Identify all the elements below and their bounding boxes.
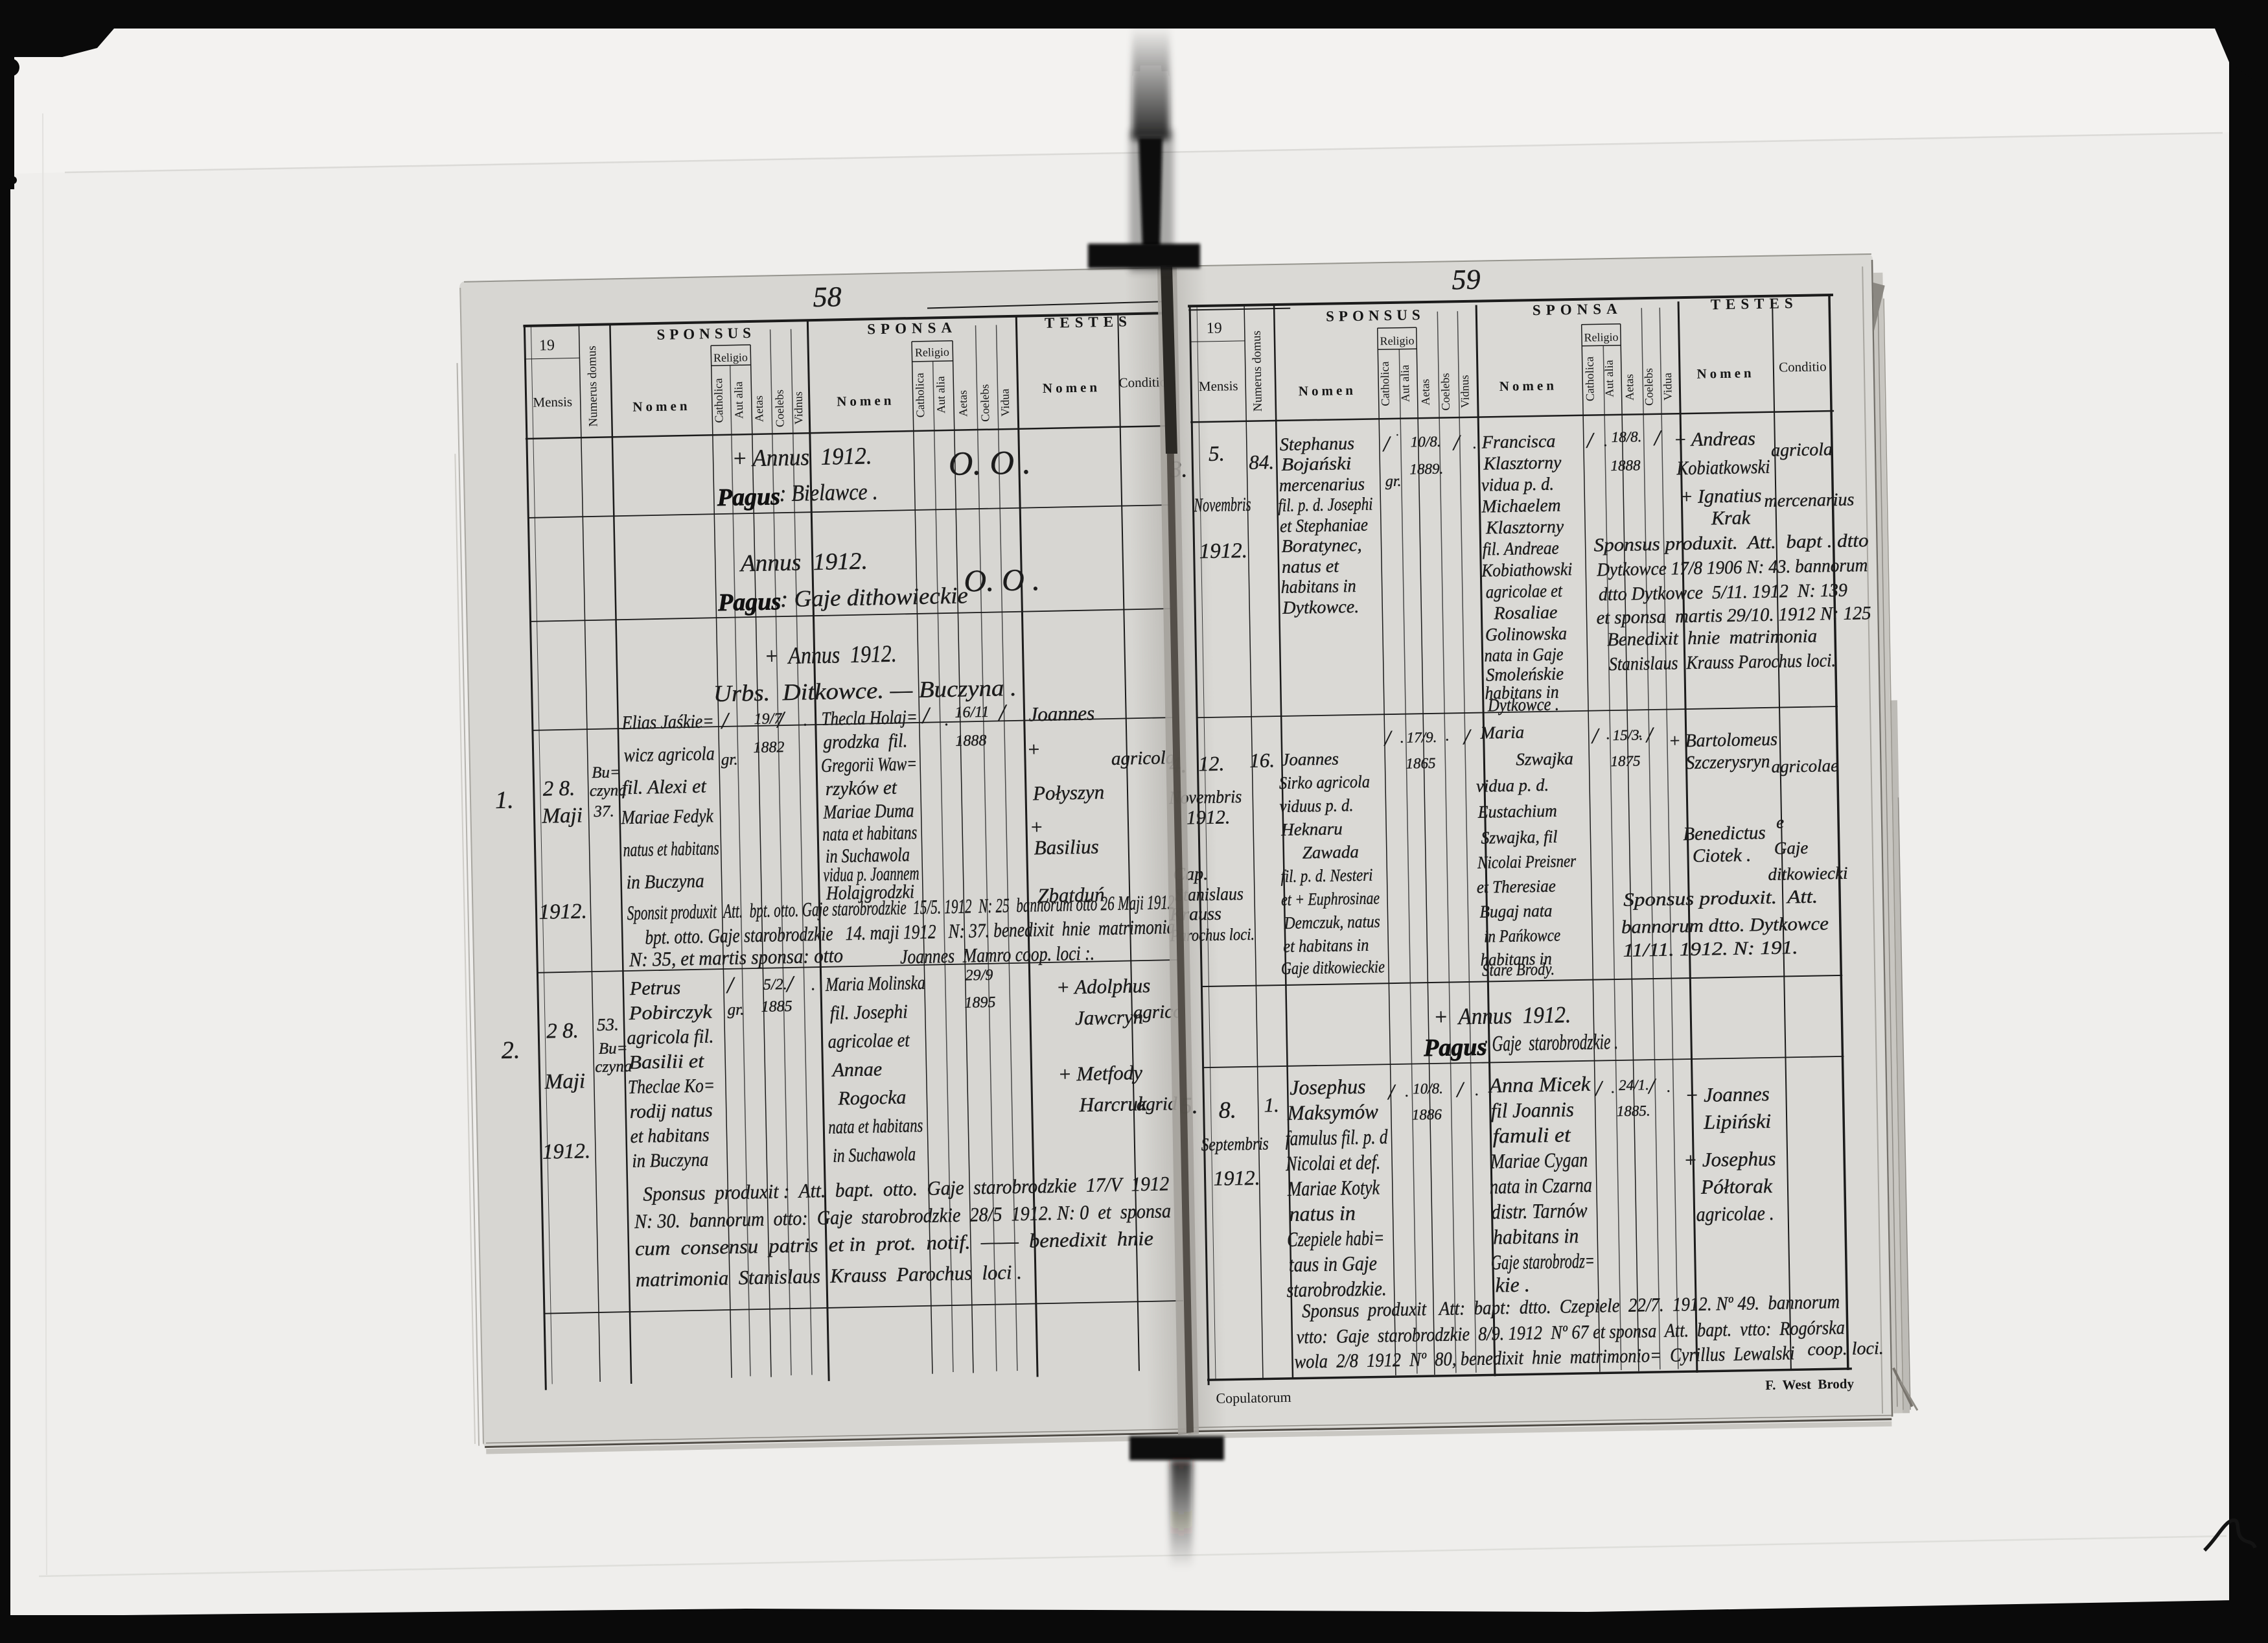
- svg-text:1.: 1.: [1264, 1093, 1279, 1116]
- svg-text:Aut alia: Aut alia: [732, 381, 745, 419]
- svg-text:5/2.: 5/2.: [763, 976, 787, 994]
- svg-text:gr.: gr.: [727, 1001, 744, 1019]
- svg-text:1885: 1885: [761, 998, 793, 1016]
- svg-text:SPONSA: SPONSA: [1533, 301, 1623, 318]
- svg-text:Francisca: Francisca: [1481, 432, 1556, 453]
- svg-text:Mariae Kotyk: Mariae Kotyk: [1287, 1175, 1380, 1200]
- svg-text:agricola: agricola: [1771, 439, 1833, 461]
- svg-text:Coelebs: Coelebs: [1439, 373, 1452, 410]
- svg-text:Szwajka, fil: Szwajka, fil: [1481, 827, 1558, 848]
- svg-text:habitans in: habitans in: [1493, 1224, 1579, 1248]
- svg-text:.: .: [1611, 1080, 1615, 1097]
- svg-text:Bu=: Bu=: [592, 763, 621, 782]
- svg-text:1885.: 1885.: [1617, 1102, 1650, 1119]
- svg-text:Religio: Religio: [1380, 334, 1414, 347]
- svg-text:.: .: [803, 710, 807, 729]
- svg-text:Catholica: Catholica: [913, 373, 927, 417]
- svg-text:TESTES: TESTES: [1710, 295, 1798, 312]
- svg-text:Szczerysryn: Szczerysryn: [1685, 751, 1770, 773]
- svg-text:24/1.: 24/1.: [1619, 1077, 1649, 1093]
- svg-text:.: .: [944, 710, 949, 729]
- svg-text:fil. Josephi: fil. Josephi: [829, 1001, 908, 1023]
- svg-text:Basilius: Basilius: [1034, 835, 1099, 859]
- svg-text:Maksymów: Maksymów: [1287, 1099, 1379, 1124]
- svg-text:1.: 1.: [495, 786, 514, 814]
- svg-text:Religio: Religio: [915, 345, 949, 359]
- svg-text:Coelebs: Coelebs: [772, 390, 786, 427]
- svg-text:Demczuk, natus: Demczuk, natus: [1284, 911, 1380, 933]
- svg-text:Septembris: Septembris: [1201, 1134, 1269, 1155]
- svg-text:Vidnus: Vidnus: [1458, 375, 1472, 408]
- svg-text:e: e: [1776, 812, 1785, 832]
- svg-text:Bojański: Bojański: [1281, 454, 1352, 475]
- svg-text:10/8.: 10/8.: [1413, 1080, 1443, 1097]
- svg-text:+: +: [1026, 738, 1041, 760]
- svg-text:Benedixit hnie matrimonia: Benedixit hnie matrimonia: [1607, 626, 1818, 651]
- svg-text:Aetas: Aetas: [956, 390, 970, 417]
- svg-text:agricolae et: agricolae et: [1486, 581, 1564, 602]
- svg-text:Nicolai Preisner: Nicolai Preisner: [1477, 851, 1577, 872]
- svg-text:Pagus: Pagus: [1423, 1034, 1487, 1062]
- svg-text:1888: 1888: [955, 732, 987, 750]
- svg-text:SPONSUS: SPONSUS: [1326, 307, 1425, 325]
- svg-text:29/9: 29/9: [965, 967, 993, 985]
- svg-text:: Gaje starobrodzkie .: : Gaje starobrodzkie .: [1483, 1030, 1619, 1056]
- svg-text:5.: 5.: [1209, 442, 1225, 465]
- svg-text:Gaje ditkowieckie: Gaje ditkowieckie: [1281, 957, 1385, 978]
- svg-text:Vidua: Vidua: [1661, 373, 1674, 401]
- svg-text:Pagus: Pagus: [717, 588, 781, 616]
- svg-text:distr. Tarnów: distr. Tarnów: [1491, 1198, 1588, 1224]
- svg-text:famuli et: famuli et: [1492, 1123, 1571, 1147]
- svg-text:Kobiathowski: Kobiathowski: [1481, 559, 1572, 581]
- svg-text:Nomen: Nomen: [1299, 382, 1357, 399]
- svg-text:Coelebs: Coelebs: [978, 384, 991, 422]
- svg-text:Mensis: Mensis: [533, 394, 572, 410]
- svg-text:fil. Alexi et: fil. Alexi et: [621, 776, 706, 799]
- svg-text:1886: 1886: [1412, 1106, 1442, 1123]
- svg-text:Religio: Religio: [713, 351, 748, 364]
- svg-text:+: +: [1030, 815, 1044, 838]
- svg-text:Rosaliae: Rosaliae: [1493, 603, 1558, 624]
- svg-text:agricola fil.: agricola fil.: [627, 1025, 714, 1049]
- svg-text:mercenarius: mercenarius: [1764, 489, 1855, 511]
- svg-text:84.: 84.: [1249, 450, 1274, 474]
- svg-text:1882: 1882: [753, 739, 785, 756]
- svg-text:Annus 1912.: Annus 1912.: [738, 548, 868, 577]
- svg-text:Benedictus: Benedictus: [1683, 822, 1766, 845]
- svg-text:+ Annus 1912.: + Annus 1912.: [1433, 1001, 1571, 1030]
- svg-text:coop. loci.: coop. loci.: [1807, 1338, 1884, 1360]
- svg-text:fil. Andreae: fil. Andreae: [1482, 538, 1559, 559]
- svg-text:1895: 1895: [964, 994, 996, 1012]
- svg-text:N: 35, et martis sponsa: otto: N: 35, et martis sponsa: otto: [629, 944, 844, 971]
- svg-text:habitans in: habitans in: [1280, 576, 1356, 598]
- svg-text:+ Metfody: + Metfody: [1058, 1061, 1142, 1086]
- svg-text:Sponsus produxit. Att.: Sponsus produxit. Att.: [1623, 887, 1818, 911]
- svg-text:Conditio: Conditio: [1779, 358, 1827, 375]
- svg-text:natus et: natus et: [1282, 556, 1340, 577]
- svg-text:11/11. 1912. N: 191.: 11/11. 1912. N: 191.: [1623, 937, 1798, 961]
- svg-text:Golinowska: Golinowska: [1485, 623, 1568, 645]
- svg-text:1912.: 1912.: [1213, 1166, 1260, 1190]
- svg-text:.: .: [1446, 727, 1450, 744]
- svg-text:vidua p. d.: vidua p. d.: [1476, 775, 1549, 796]
- svg-text:Dytkowce .: Dytkowce .: [1487, 694, 1559, 716]
- svg-text:12.: 12.: [1198, 752, 1225, 776]
- svg-text:Pagus: Pagus: [716, 483, 780, 511]
- svg-text:Numerus domus: Numerus domus: [585, 345, 601, 426]
- svg-text:Bu=: Bu=: [599, 1040, 628, 1058]
- svg-text:nata et habitans: nata et habitans: [828, 1115, 923, 1138]
- svg-text:et + Euphrosinae: et + Euphrosinae: [1281, 888, 1380, 909]
- svg-text:Aut alia: Aut alia: [934, 376, 947, 414]
- svg-text:1912.: 1912.: [538, 900, 587, 924]
- svg-text:mercenarius: mercenarius: [1279, 474, 1365, 496]
- svg-text:16/11: 16/11: [955, 704, 989, 721]
- svg-text:Dytkowce.: Dytkowce.: [1282, 597, 1360, 618]
- svg-text:+ Andreas: + Andreas: [1674, 428, 1756, 450]
- svg-text:+ Joannes: + Joannes: [1685, 1082, 1770, 1106]
- svg-text:18/8.: 18/8.: [1612, 428, 1642, 445]
- svg-text:Annae: Annae: [831, 1058, 882, 1081]
- svg-text:Catholica: Catholica: [1583, 356, 1597, 401]
- svg-text:: Gaje dithowieckie: : Gaje dithowieckie: [780, 582, 969, 612]
- svg-text:et Theresiae: et Theresiae: [1477, 876, 1556, 897]
- svg-text:Josephus: Josephus: [1290, 1075, 1366, 1099]
- svg-text:Heknaru: Heknaru: [1280, 819, 1343, 839]
- svg-text:Sirko agricola: Sirko agricola: [1279, 772, 1371, 793]
- svg-text:Półtorak: Półtorak: [1700, 1174, 1774, 1198]
- svg-text:Joannes: Joannes: [1028, 701, 1094, 725]
- svg-text:.: .: [1396, 425, 1399, 438]
- svg-text:Aut alia: Aut alia: [1398, 365, 1412, 402]
- svg-text:17/9.: 17/9.: [1407, 729, 1437, 746]
- svg-text:Vidnus: Vidnus: [792, 391, 805, 425]
- svg-text:et Stephaniae: et Stephaniae: [1280, 515, 1369, 537]
- svg-text:agricolae et: agricolae et: [827, 1029, 910, 1053]
- svg-text:1889.: 1889.: [1409, 461, 1443, 478]
- svg-text:gr.: gr.: [1385, 473, 1402, 490]
- svg-text:.: .: [1473, 436, 1477, 452]
- svg-text:grodzka fil.: grodzka fil.: [823, 730, 908, 753]
- svg-text:Szwajka: Szwajka: [1516, 749, 1573, 769]
- svg-text:19: 19: [1206, 320, 1221, 336]
- svg-text:nata in Gaje: nata in Gaje: [1484, 644, 1564, 666]
- svg-text:Petrus: Petrus: [629, 977, 681, 999]
- svg-text:natus in: natus in: [1289, 1201, 1356, 1226]
- svg-text:Gaje starobrodz=: Gaje starobrodz=: [1491, 1249, 1595, 1274]
- svg-text:+ Annus 1912.: + Annus 1912.: [732, 443, 872, 472]
- svg-text:Stanislaus Krauss Parochus lo: Stanislaus Krauss Parochus loci.: [1609, 650, 1836, 675]
- svg-text:SPONSUS: SPONSUS: [656, 325, 756, 343]
- svg-text:Coelebs: Coelebs: [1642, 368, 1656, 406]
- svg-text:fil. p. d. Josephi: fil. p. d. Josephi: [1278, 494, 1373, 516]
- svg-text:1912.: 1912.: [542, 1139, 591, 1163]
- svg-text:Aetas: Aetas: [1623, 374, 1636, 401]
- svg-text:dtto Dytkowce 5/11. 1912 N:: dtto Dytkowce 5/11. 1912 N: 139: [1599, 580, 1848, 605]
- svg-text:19: 19: [539, 337, 555, 354]
- svg-text:Zawada: Zawada: [1302, 842, 1360, 863]
- svg-text:Religio: Religio: [1584, 331, 1618, 344]
- svg-text:et habitans in: et habitans in: [1283, 935, 1369, 956]
- svg-text:O. O .: O. O .: [964, 563, 1040, 598]
- svg-text:Maji: Maji: [541, 804, 583, 828]
- svg-text:et habitans: et habitans: [630, 1124, 710, 1147]
- svg-text:Joannes: Joannes: [1281, 749, 1339, 769]
- svg-text:bannorum dtto. Dytkowce: bannorum dtto. Dytkowce: [1621, 913, 1829, 938]
- svg-text:.: .: [1638, 724, 1642, 741]
- svg-text:Połyszyn: Połyszyn: [1032, 780, 1105, 804]
- svg-text:ditkowiecki: ditkowiecki: [1768, 863, 1847, 884]
- svg-text:Gaje: Gaje: [1774, 838, 1809, 858]
- svg-text:Nomen: Nomen: [837, 393, 895, 410]
- svg-text:kie .: kie .: [1495, 1272, 1530, 1296]
- svg-text:1912.: 1912.: [1186, 806, 1231, 828]
- svg-text:Numerus domus: Numerus domus: [1250, 331, 1265, 412]
- svg-text:in Buczyna: in Buczyna: [632, 1149, 709, 1172]
- svg-text:Mariae Fedyk: Mariae Fedyk: [620, 805, 713, 828]
- svg-text:nata et habitans: nata et habitans: [822, 822, 918, 845]
- svg-text:czyna: czyna: [590, 782, 627, 800]
- svg-text:Elias Jaśkie=: Elias Jaśkie=: [621, 710, 714, 734]
- svg-text:natus et habitans: natus et habitans: [623, 837, 719, 861]
- svg-text:Anna Micek: Anna Micek: [1488, 1072, 1591, 1097]
- svg-text:starobrodzkie.: starobrodzkie.: [1286, 1276, 1387, 1301]
- svg-text:Mariae Duma: Mariae Duma: [822, 800, 914, 823]
- svg-text:58: 58: [813, 281, 842, 313]
- svg-text:in Buczyna: in Buczyna: [626, 870, 704, 893]
- svg-text:fil. p. d. Nesteri: fil. p. d. Nesteri: [1280, 865, 1373, 886]
- svg-text:Czepiele habi=: Czepiele habi=: [1287, 1226, 1385, 1251]
- svg-text:Copulatorum: Copulatorum: [1216, 1389, 1291, 1406]
- svg-text:Aetas: Aetas: [1418, 379, 1432, 405]
- svg-text:Bugaj nata: Bugaj nata: [1479, 901, 1553, 922]
- svg-text:famulus fil. p. d: famulus fil. p. d: [1285, 1124, 1388, 1150]
- svg-text:Kobiatkowski: Kobiatkowski: [1676, 456, 1770, 480]
- svg-text:O. O .: O. O .: [948, 444, 1031, 483]
- svg-text:.: .: [811, 975, 816, 994]
- svg-text:Klasztorny: Klasztorny: [1483, 452, 1562, 474]
- svg-text:Maria Molinska: Maria Molinska: [825, 972, 925, 996]
- svg-text:.: .: [1405, 1084, 1409, 1101]
- svg-text:16.: 16.: [1249, 749, 1275, 772]
- svg-text:1875: 1875: [1610, 752, 1640, 769]
- svg-text:viduus p. d.: viduus p. d.: [1279, 795, 1354, 816]
- svg-text:10/8.: 10/8.: [1411, 434, 1441, 450]
- svg-text:Boratynec,: Boratynec,: [1281, 535, 1362, 557]
- svg-text:+ Josephus: + Josephus: [1684, 1147, 1776, 1171]
- svg-text:.: .: [1475, 1082, 1479, 1099]
- svg-text:Michaelem: Michaelem: [1481, 495, 1561, 517]
- svg-text:Gregorii Waw=: Gregorii Waw=: [821, 753, 918, 776]
- svg-text:agrid: agrid: [1136, 1093, 1177, 1115]
- svg-text:.: .: [1667, 1079, 1671, 1096]
- svg-text:F. West Brody: F. West Brody: [1765, 1376, 1855, 1393]
- svg-text:agricolae: agricolae: [1771, 756, 1838, 776]
- svg-text:nata in Czarna: nata in Czarna: [1490, 1173, 1593, 1198]
- svg-text:Stephanus: Stephanus: [1280, 434, 1355, 455]
- svg-text:TESTES: TESTES: [1045, 313, 1132, 331]
- svg-text:1912.: 1912.: [1199, 539, 1247, 563]
- svg-text:Mariae Cygan: Mariae Cygan: [1490, 1148, 1588, 1173]
- svg-text:1865: 1865: [1406, 755, 1435, 772]
- svg-text:agricolae .: agricolae .: [1696, 1202, 1774, 1226]
- svg-text:+ Bartolomeus: + Bartolomeus: [1669, 729, 1778, 752]
- svg-text:.: .: [1606, 726, 1610, 743]
- svg-text:Catholica: Catholica: [1378, 361, 1392, 406]
- svg-text:53.: 53.: [597, 1014, 619, 1034]
- svg-text:Maji: Maji: [544, 1069, 585, 1093]
- svg-text:Lipiński: Lipiński: [1703, 1110, 1772, 1134]
- svg-text:Ciotek .: Ciotek .: [1693, 845, 1752, 867]
- svg-text:rodij natus: rodij natus: [629, 1099, 713, 1123]
- svg-text:: Bielawce .: : Bielawce .: [779, 478, 878, 506]
- svg-text:Maria: Maria: [1479, 722, 1524, 742]
- svg-text:37.: 37.: [593, 802, 614, 821]
- svg-text:Nomen: Nomen: [1499, 377, 1558, 394]
- svg-text:in Pańkowce: in Pańkowce: [1484, 926, 1561, 946]
- svg-text:in Suchawola: in Suchawola: [833, 1143, 916, 1167]
- svg-text:+ Adolphus: + Adolphus: [1056, 974, 1151, 999]
- svg-text:czyna: czyna: [595, 1058, 632, 1076]
- svg-text:2 8.: 2 8.: [542, 777, 575, 801]
- svg-text:rzyków et: rzyków et: [826, 777, 897, 800]
- svg-text:Aut alia: Aut alia: [1603, 360, 1616, 397]
- svg-text:1888: 1888: [1610, 457, 1641, 474]
- svg-text:gr.: gr.: [721, 751, 738, 769]
- svg-text:Krak: Krak: [1711, 507, 1751, 529]
- svg-text:Nicolai et def.: Nicolai et def.: [1285, 1150, 1380, 1175]
- svg-text:8.: 8.: [1218, 1097, 1236, 1123]
- svg-text:vidua p. d.: vidua p. d.: [1481, 474, 1555, 496]
- svg-text:.: .: [1604, 433, 1608, 450]
- svg-text:fil Joannis: fil Joannis: [1491, 1097, 1575, 1122]
- svg-text:Theclae Ko=: Theclae Ko=: [628, 1075, 715, 1098]
- svg-text:Stare Brody.: Stare Brody.: [1482, 959, 1555, 980]
- svg-text:+ Ignatius: + Ignatius: [1680, 485, 1762, 507]
- svg-text:Joannes Mamro coop. loci :.: Joannes Mamro coop. loci :.: [900, 942, 1095, 968]
- svg-text:Nomen: Nomen: [632, 398, 691, 415]
- svg-text:Catholica: Catholica: [712, 378, 725, 423]
- svg-text:Aetas: Aetas: [752, 395, 766, 422]
- svg-text:Mensis: Mensis: [1199, 378, 1238, 394]
- svg-text:Nomen: Nomen: [1696, 365, 1755, 382]
- svg-text:wicz agricola: wicz agricola: [623, 743, 715, 766]
- svg-text:Thecla Holaj=: Thecla Holaj=: [821, 706, 918, 730]
- svg-text:.: .: [1400, 730, 1404, 747]
- svg-text:Rogocka: Rogocka: [837, 1086, 907, 1109]
- svg-text:2 8.: 2 8.: [546, 1020, 579, 1043]
- svg-text:Basilii et: Basilii et: [629, 1051, 704, 1073]
- svg-text:Eustachium: Eustachium: [1477, 801, 1557, 822]
- svg-text:2.: 2.: [501, 1036, 520, 1064]
- svg-text:Pobirczyk: Pobirczyk: [628, 1001, 712, 1024]
- svg-text:+ Annus 1912.: + Annus 1912.: [764, 641, 897, 670]
- svg-text:Nomen: Nomen: [1043, 379, 1101, 396]
- svg-text:SPONSA: SPONSA: [867, 320, 957, 338]
- svg-text:59: 59: [1452, 264, 1481, 296]
- svg-text:agricola: agricola: [1111, 747, 1175, 769]
- svg-text:Novembris: Novembris: [1193, 494, 1251, 517]
- svg-text:Vidua: Vidua: [998, 388, 1012, 416]
- svg-text:taus in Gaje: taus in Gaje: [1289, 1252, 1378, 1276]
- svg-text:Klasztorny: Klasztorny: [1485, 517, 1564, 538]
